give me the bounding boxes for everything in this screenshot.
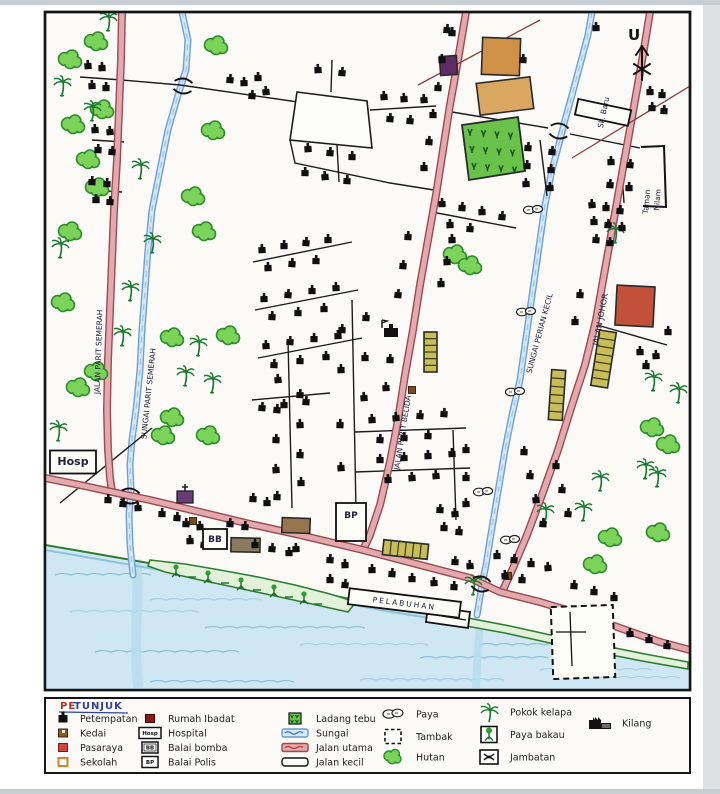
padang-field	[290, 92, 372, 148]
legend-label: Jalan utama	[315, 743, 373, 754]
hospital-legend-icon: Hosp	[139, 728, 161, 739]
legend-label: Rumah Ibadat	[168, 714, 235, 725]
legend-title: TUNJUK	[74, 701, 123, 712]
kedai-legend-icon	[59, 729, 68, 737]
legend-label: Ladang tebu	[316, 714, 376, 725]
map-photo-page: Jalan Parit SemerahSungai Parit SemerahJ…	[0, 0, 720, 794]
building	[476, 77, 533, 115]
legend-label: Petempatan	[80, 714, 137, 725]
building	[481, 37, 520, 75]
jalan-kecil	[331, 60, 332, 92]
legend-label: Kilang	[622, 719, 651, 730]
paya-bakau-legend-icon	[481, 727, 497, 743]
pasaraya-legend-icon	[59, 744, 68, 752]
map-label-bp: BP	[336, 503, 366, 541]
legend-label: Pokok kelapa	[510, 708, 572, 719]
rumah-ibadat-legend-icon	[146, 715, 155, 723]
legend-label: Paya	[416, 710, 439, 721]
north-label: U	[628, 26, 640, 44]
legend: PE TUNJUK HospBBBP Petempatan Kedai Pasa…	[45, 698, 690, 773]
map-label-hosp: Hosp	[50, 451, 96, 474]
hand-drawn-sketch-map: Jalan Parit SemerahSungai Parit SemerahJ…	[0, 0, 720, 794]
legend-label: Paya bakau	[510, 730, 565, 741]
paya-swamp-icon	[524, 206, 543, 214]
right-edge-strip	[703, 0, 720, 794]
legend-label: Tambak	[415, 732, 453, 743]
map-label-bb: BB	[203, 529, 227, 549]
jalan-utama-legend-icon	[282, 744, 308, 752]
svg-text:BP: BP	[344, 511, 358, 521]
river-mouth-streak	[136, 560, 138, 688]
svg-text:BB: BB	[208, 535, 222, 545]
paya-legend-icon	[383, 709, 403, 718]
paya-swamp-icon	[501, 536, 520, 544]
paya-swamp-icon	[474, 488, 493, 496]
legend-label: Balai Polis	[168, 758, 216, 769]
jambatan-legend-icon	[480, 750, 498, 764]
paya-swamp-icon	[506, 388, 525, 396]
map-label-nilam: Nilam	[652, 189, 663, 211]
shophouse-row	[548, 370, 565, 421]
jalan-kecil-legend-icon	[282, 758, 308, 766]
legend-label: Pasaraya	[80, 743, 123, 754]
legend-label: Kedai	[80, 729, 106, 740]
paya-swamp-icon	[517, 308, 536, 316]
tambak-area	[551, 605, 615, 679]
legend-label: Hospital	[168, 729, 207, 740]
legend-label: Sungai	[316, 729, 349, 740]
tambak-legend-icon	[385, 730, 401, 744]
balai-bomba-legend-icon: BB	[142, 742, 158, 753]
legend-label: Jalan kecil	[315, 758, 364, 769]
svg-text:Nilam: Nilam	[652, 189, 663, 211]
legend-label: Sekolah	[80, 758, 117, 769]
legend-label: Jambatan	[509, 753, 555, 764]
kedai-square	[409, 387, 416, 394]
svg-text:Hosp: Hosp	[142, 731, 158, 737]
building	[615, 285, 655, 327]
top-edge-strip	[0, 0, 720, 5]
svg-text:Hosp: Hosp	[57, 455, 88, 468]
svg-text:BP: BP	[146, 760, 154, 766]
ladang-tebu-legend-icon	[289, 713, 301, 724]
sekolah-legend-icon	[59, 758, 68, 766]
shophouse-row	[424, 332, 437, 372]
svg-text:BB: BB	[146, 746, 154, 752]
balai-polis-legend-icon: BP	[142, 757, 158, 768]
building	[282, 518, 311, 534]
bottom-edge-strip	[0, 789, 720, 794]
river-mouth-streak	[476, 624, 480, 688]
legend-label: Balai bomba	[168, 743, 227, 754]
sungai-legend-icon	[282, 729, 308, 737]
legend-label: Hutan	[416, 753, 445, 764]
kedai-square	[190, 518, 197, 525]
